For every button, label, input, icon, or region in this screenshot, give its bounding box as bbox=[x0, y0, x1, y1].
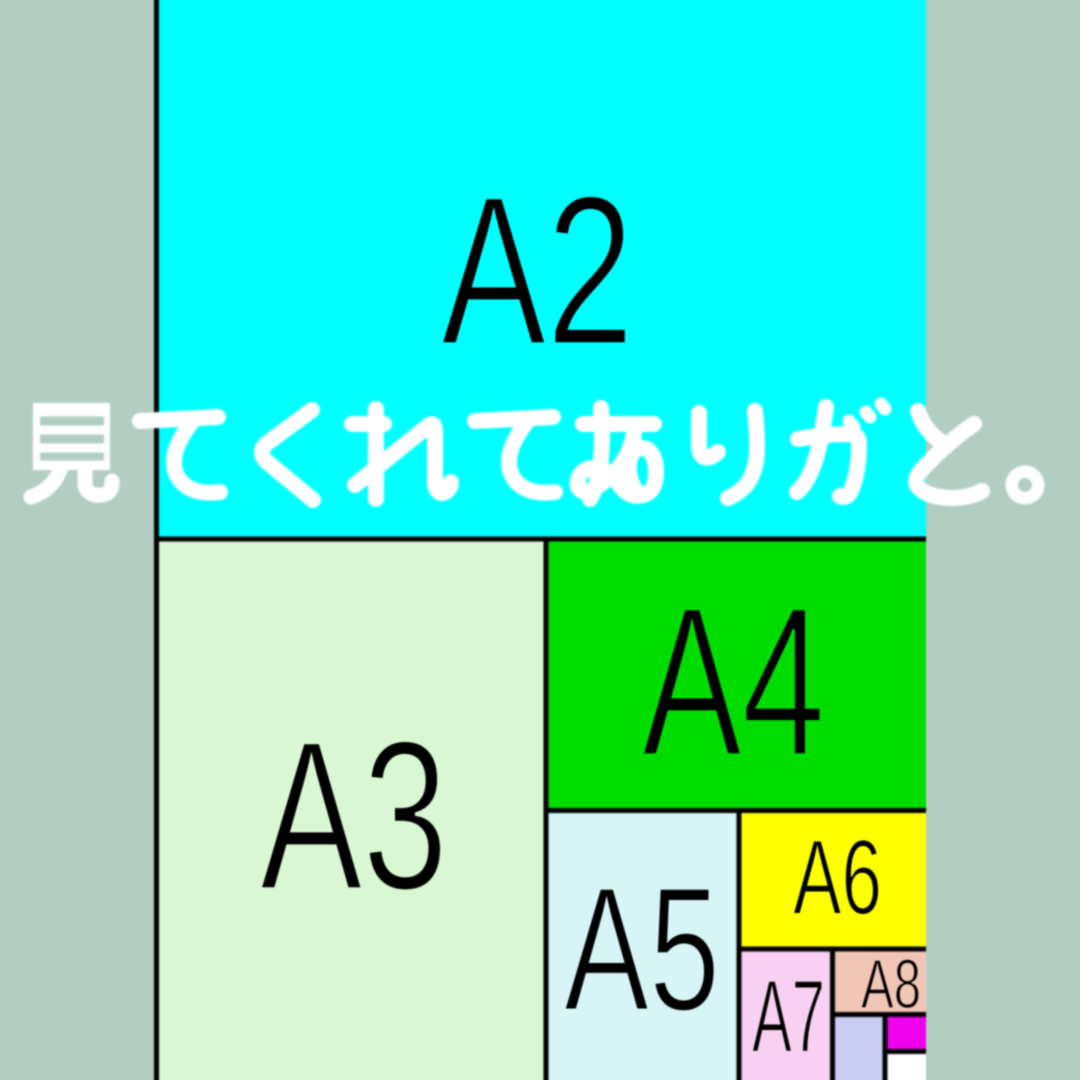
svg-text:A5: A5 bbox=[564, 850, 720, 1048]
svg-text:A7: A7 bbox=[752, 959, 825, 1074]
svg-text:A6: A6 bbox=[793, 817, 882, 937]
svg-text:A8: A8 bbox=[861, 945, 921, 1023]
svg-text:A2: A2 bbox=[441, 152, 634, 390]
svg-text:A4: A4 bbox=[642, 563, 825, 801]
svg-text:A3: A3 bbox=[260, 697, 448, 935]
